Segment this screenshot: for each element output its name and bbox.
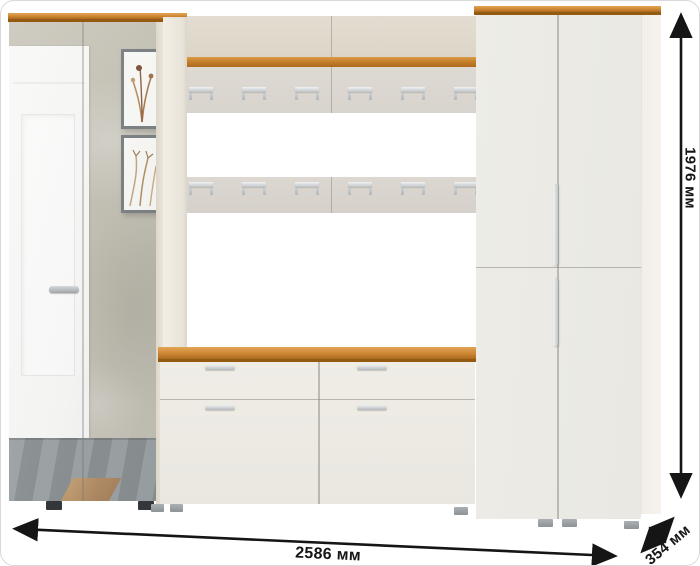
door-handle-icon xyxy=(357,405,387,410)
mirror-wardrobe xyxy=(9,22,156,501)
top-shelf xyxy=(187,57,477,67)
coat-hook-icon xyxy=(189,87,213,100)
bench-foot xyxy=(151,504,164,512)
mirror-glass-tint xyxy=(9,22,156,501)
coat-hook-icon xyxy=(189,182,213,195)
coat-hook-icon xyxy=(242,182,266,195)
hall-panel-side-upright xyxy=(163,17,187,349)
shoe-bench xyxy=(160,362,475,504)
double-wardrobe xyxy=(476,15,641,519)
wardrobe-foot xyxy=(624,521,639,529)
mirror-wardrobe-foot xyxy=(46,501,62,510)
panel-seam xyxy=(331,67,332,113)
coat-hook-icon xyxy=(348,182,372,195)
panel-seam xyxy=(331,16,332,58)
coat-hook-icon xyxy=(242,87,266,100)
coat-hook-icon xyxy=(401,182,425,195)
wardrobe-upper-handle-icon xyxy=(553,184,558,265)
coat-hook-icon xyxy=(295,182,319,195)
wardrobe-foot xyxy=(562,519,577,527)
depth-dimension-label: 354 мм xyxy=(643,522,693,566)
coat-hook-icon xyxy=(348,87,372,100)
wardrobe-horizontal-seam xyxy=(476,267,641,268)
bench-wood-top xyxy=(158,347,477,362)
drawer-handle-icon xyxy=(205,365,235,370)
door-handle-icon xyxy=(205,405,235,410)
bench-center-seam xyxy=(318,362,320,504)
wardrobe-wood-top xyxy=(474,6,661,15)
coat-hook-icon xyxy=(454,182,478,195)
hall-panel-upper-band xyxy=(187,16,476,58)
hook-rail-upper xyxy=(187,67,476,113)
drawer-handle-icon xyxy=(357,365,387,370)
coat-hook-icon xyxy=(401,87,425,100)
coat-hook-icon xyxy=(295,87,319,100)
bench-foot xyxy=(170,504,183,512)
width-dimension-label: 2586 мм xyxy=(295,546,361,565)
wardrobe-side-panel xyxy=(641,15,661,514)
height-dimension-label: 1976 мм xyxy=(683,147,698,209)
wardrobe-foot xyxy=(538,519,553,527)
coat-hook-icon xyxy=(454,87,478,100)
bench-foot xyxy=(454,507,468,515)
wardrobe-lower-handle-icon xyxy=(553,278,558,346)
hook-rail-lower xyxy=(187,177,476,213)
mirror-wardrobe-wood-top xyxy=(8,13,187,22)
furniture-dimension-diagram: 2586 мм 1976 мм 354 мм xyxy=(0,0,700,566)
panel-seam xyxy=(331,177,332,213)
